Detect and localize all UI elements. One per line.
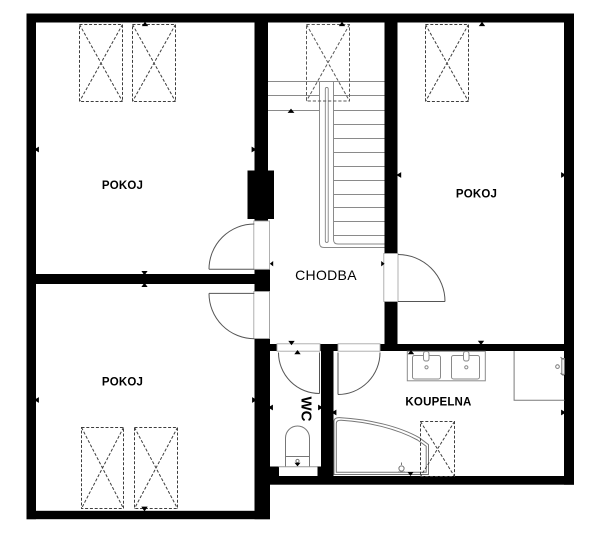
svg-text:KOUPELNA: KOUPELNA [405,397,471,409]
svg-text:CHODBA: CHODBA [295,267,357,283]
svg-text:WC: WC [298,397,315,422]
svg-text:POKOJ: POKOJ [102,180,143,192]
svg-text:POKOJ: POKOJ [102,377,143,389]
svg-text:POKOJ: POKOJ [456,189,497,201]
